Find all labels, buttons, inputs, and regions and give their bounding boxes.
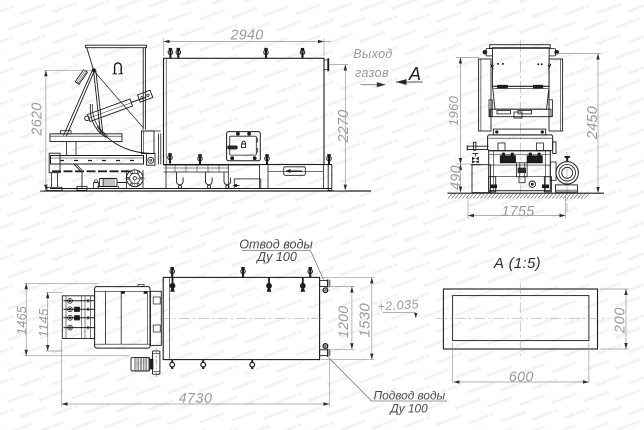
- svg-text:Подвод воды: Подвод воды: [374, 389, 446, 403]
- svg-text:А: А: [408, 64, 421, 84]
- svg-text:Ду 100: Ду 100: [388, 402, 428, 416]
- svg-text:600: 600: [509, 369, 534, 385]
- svg-text:Ду 100: Ду 100: [255, 250, 297, 264]
- svg-text:2270: 2270: [336, 109, 352, 143]
- svg-text:1200: 1200: [335, 306, 351, 338]
- svg-text:2620: 2620: [30, 102, 46, 136]
- svg-text:1145: 1145: [36, 308, 51, 338]
- svg-text:4730: 4730: [179, 391, 213, 407]
- svg-text:490: 490: [449, 165, 465, 190]
- svg-text:1465: 1465: [14, 305, 29, 335]
- svg-text:газов: газов: [355, 66, 389, 80]
- svg-text:1530: 1530: [357, 303, 374, 338]
- svg-text:А (1:5): А (1:5): [493, 255, 541, 272]
- svg-text:Выход: Выход: [353, 47, 393, 61]
- svg-text:1960: 1960: [446, 95, 461, 126]
- svg-text:2940: 2940: [229, 28, 263, 44]
- svg-text:+2.035: +2.035: [377, 297, 419, 314]
- svg-text:1755: 1755: [501, 204, 534, 220]
- svg-text:2450: 2450: [585, 106, 601, 140]
- svg-text:200: 200: [612, 307, 628, 334]
